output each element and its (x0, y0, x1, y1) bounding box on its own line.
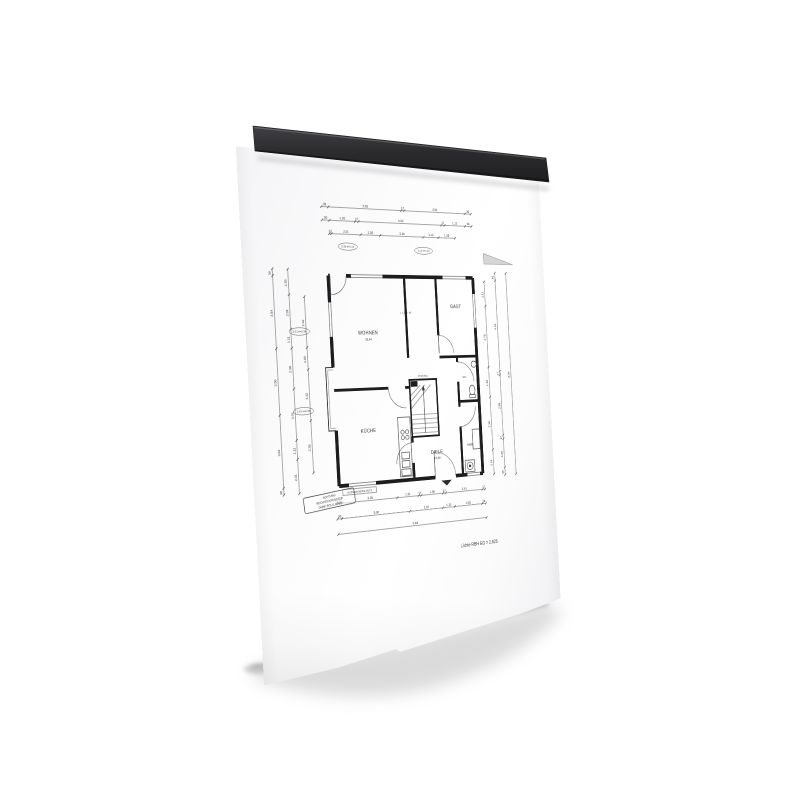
svg-text:1.36: 1.36 (486, 380, 489, 386)
svg-text:1.13: 1.13 (428, 233, 433, 237)
svg-text:2.38: 2.38 (289, 366, 293, 373)
window-tag-1: 2.38 h=1.13 (338, 243, 358, 251)
svg-text:17: 17 (482, 485, 485, 489)
dim-chain-right-mid: 364.32172.88171.3636 (491, 272, 506, 476)
svg-text:9.48: 9.48 (413, 521, 419, 525)
svg-text:4.32: 4.32 (494, 324, 497, 330)
svg-text:1.11: 1.11 (287, 336, 291, 343)
svg-text:2.41: 2.41 (462, 487, 467, 491)
dim-chain-right-total: 8.04 (502, 272, 517, 475)
svg-text:17: 17 (443, 489, 446, 493)
svg-text:2.01: 2.01 (343, 230, 349, 234)
window-tag-4: 2.01 h=2.38 (293, 407, 314, 415)
room-label-hwr: HWR (467, 443, 473, 447)
svg-text:1.00: 1.00 (303, 356, 307, 363)
svg-text:1.38: 1.38 (430, 490, 435, 494)
svg-text:4.32: 4.32 (398, 219, 404, 223)
hwr-fixtures (464, 429, 482, 472)
svg-text:36: 36 (280, 491, 284, 495)
svg-text:1.38: 1.38 (367, 231, 373, 235)
svg-text:3.50: 3.50 (274, 379, 278, 386)
svg-text:1.11: 1.11 (490, 460, 493, 466)
svg-text:2.62: 2.62 (466, 501, 471, 505)
room-area-wohnen: 28,44 (365, 338, 372, 342)
stair-landing-mark (411, 381, 418, 387)
window-tag-text: 2.01 h=2.38 (293, 329, 307, 333)
window-tag-3: 2.01 h=2.38 (289, 328, 310, 336)
floor-plan-drawing: 363.93173.5136 361.26174.32171.1336 122.… (236, 146, 562, 685)
svg-text:36: 36 (502, 470, 505, 474)
window-tag-2: 1.13 h=1.13 (414, 247, 432, 254)
level-annotation: + 1,50 + 87 (400, 311, 412, 315)
staircase (409, 379, 439, 437)
window-tag-text: 2.01 h=2.38 (297, 409, 311, 414)
svg-text:1.11: 1.11 (293, 447, 297, 454)
svg-text:36: 36 (482, 499, 485, 503)
product-photo-scene: 363.93173.5136 361.26174.32171.1336 122.… (0, 0, 800, 800)
svg-text:36: 36 (467, 222, 470, 226)
svg-text:2.88: 2.88 (498, 403, 501, 409)
window-tag-text: 2.38 h=1.13 (341, 244, 354, 248)
svg-text:8.04: 8.04 (507, 371, 510, 377)
svg-text:1.13: 1.13 (446, 503, 451, 507)
paper-perspective-wrapper: 363.93173.5136 361.26174.32171.1336 122.… (236, 146, 562, 685)
window-tag-text: 1.13 h=1.13 (418, 249, 430, 253)
room-label-kueche: KÜCHE (361, 427, 377, 435)
dim-chain-left-outer: 363.843.503.8436 (268, 267, 286, 497)
svg-text:3.93: 3.93 (362, 204, 368, 208)
svg-text:36: 36 (466, 210, 469, 214)
svg-text:2.38: 2.38 (488, 421, 491, 427)
svg-text:3.02: 3.02 (424, 505, 429, 509)
svg-text:12: 12 (328, 229, 332, 233)
svg-text:5.90: 5.90 (374, 510, 380, 515)
kitchen-counter (398, 417, 413, 477)
svg-text:36: 36 (323, 202, 327, 206)
room-label-diele: DIELE (431, 449, 443, 456)
svg-text:17: 17 (500, 436, 503, 440)
svg-text:1.26: 1.26 (339, 216, 345, 220)
slope-marker-icon (483, 253, 512, 264)
room-label-wohnen: WOHNEN (358, 330, 378, 336)
dim-chain-bottom-2: 365.903.021.132.6236 (336, 499, 487, 521)
svg-text:17: 17 (441, 221, 444, 225)
svg-text:36: 36 (324, 215, 328, 219)
dim-chain-top-3: 122.011.383.161.131.26 (328, 229, 456, 240)
svg-text:3.16: 3.16 (399, 232, 405, 236)
svg-text:1.31: 1.31 (405, 492, 411, 496)
svg-text:17: 17 (401, 206, 404, 210)
dim-chain-top-1: 363.93173.5136 (320, 202, 472, 216)
dim-chain-left-inner: 2.321.002.322.38 (300, 295, 315, 474)
svg-text:3.84: 3.84 (270, 310, 274, 317)
svg-text:36: 36 (338, 514, 342, 518)
paper-tilt-wrapper: 363.93173.5136 361.26174.32171.1336 122.… (236, 126, 659, 686)
svg-text:1.13: 1.13 (452, 221, 457, 225)
dim-chain-left-mid: 1.502.011.112.383.011.112.01 (283, 268, 300, 496)
svg-text:2.38: 2.38 (308, 444, 312, 451)
svg-text:17: 17 (496, 372, 499, 376)
svg-text:1.36: 1.36 (501, 451, 504, 457)
bottom-note: Lichte RBH EG = 2.625 (461, 539, 498, 549)
room-label-wc: WC (463, 375, 467, 379)
svg-text:3.84: 3.84 (277, 449, 281, 456)
dim-chain-top-2: 361.26174.32171.1336 (321, 215, 473, 228)
bay-window (326, 367, 337, 431)
paper-sheet: 363.93173.5136 361.26174.32171.1336 122.… (236, 146, 562, 685)
svg-text:36: 36 (268, 271, 272, 275)
svg-text:17: 17 (355, 217, 358, 221)
svg-text:2.01: 2.01 (286, 309, 290, 316)
dim-chain-bottom-1: 17113.261.31171.38172.4117 (335, 485, 486, 505)
entrance-step-marker (442, 480, 452, 486)
svg-text:1.11: 1.11 (481, 292, 484, 298)
room-area-diele: 10,48 (434, 456, 441, 460)
svg-text:2.76: 2.76 (483, 334, 486, 340)
room-label-gast: GAST (450, 304, 461, 310)
svg-text:2.01: 2.01 (294, 474, 298, 481)
svg-text:2.32: 2.32 (301, 320, 305, 327)
svg-text:3.26: 3.26 (367, 496, 373, 501)
edge-label-box: AUSSENKANTE PUTZ (343, 487, 377, 496)
svg-text:36: 36 (491, 276, 494, 280)
svg-text:1.50: 1.50 (284, 279, 288, 286)
svg-text:2.32: 2.32 (305, 393, 309, 400)
svg-text:17: 17 (418, 491, 421, 495)
svg-text:1.26: 1.26 (444, 234, 449, 238)
svg-text:3.51: 3.51 (432, 208, 437, 212)
stair-label: 17/18 Stg (418, 374, 428, 378)
